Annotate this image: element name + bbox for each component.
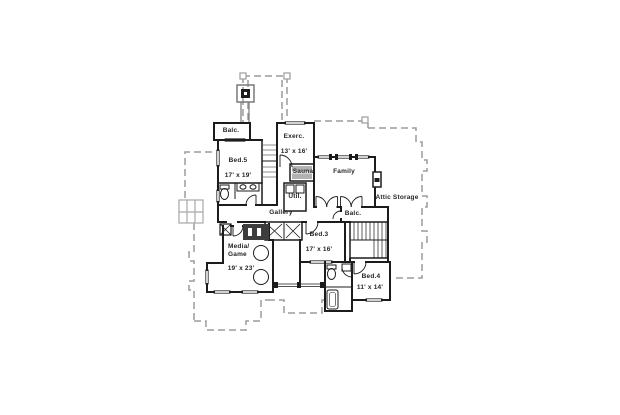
floor-plan-drawing xyxy=(0,0,620,415)
room-label-balc-top: Balc. xyxy=(223,127,240,135)
room-dims-media-game: 19' x 23' xyxy=(228,265,255,273)
roof-corner-posts xyxy=(240,73,368,123)
room-label-balc-right: Balc. xyxy=(345,210,362,218)
left-bay-outline xyxy=(179,200,203,223)
chimney-icon xyxy=(237,85,254,123)
room-dims-bed3: 17' x 16' xyxy=(306,246,333,254)
room-label-bed4: Bed.4 xyxy=(362,273,381,281)
floor-plan-canvas: Balc. Bed.5 17' x 19' Exerc. 13' x 16' S… xyxy=(0,0,620,415)
room-dims-exerc: 13' x 16' xyxy=(281,148,308,156)
room-label-bed3: Bed.3 xyxy=(310,231,329,239)
room-dims-bed4: 11' x 14' xyxy=(357,284,383,292)
roof-bottomleft-castellation xyxy=(194,300,268,330)
room-label-bed5: Bed.5 xyxy=(229,157,248,165)
room-label-exerc: Exerc. xyxy=(284,133,305,141)
roof-right-castellation xyxy=(368,128,427,278)
room-label-sauna: Sauna xyxy=(293,168,314,176)
room-label-media-game: Media/ Game xyxy=(228,243,249,259)
room-label-util: Util. xyxy=(288,193,301,201)
washer-dryer-icons xyxy=(286,185,304,193)
room-label-attic: Attic Storage xyxy=(375,194,418,202)
media-game-line2: Game xyxy=(228,251,247,258)
room-label-gallery: Gallery xyxy=(269,209,292,217)
media-game-line1: Media/ xyxy=(228,243,249,250)
room-dims-bed5: 17' x 19' xyxy=(225,172,252,180)
staircase xyxy=(350,222,388,262)
wardrobe-shelving xyxy=(262,145,277,177)
family-niche xyxy=(373,172,381,187)
bath1-fixtures xyxy=(220,183,259,200)
media-tables xyxy=(254,246,269,285)
media-builtin-cabinet xyxy=(243,224,269,240)
bath2-fixtures xyxy=(325,264,352,309)
room-label-family: Family xyxy=(333,168,355,176)
